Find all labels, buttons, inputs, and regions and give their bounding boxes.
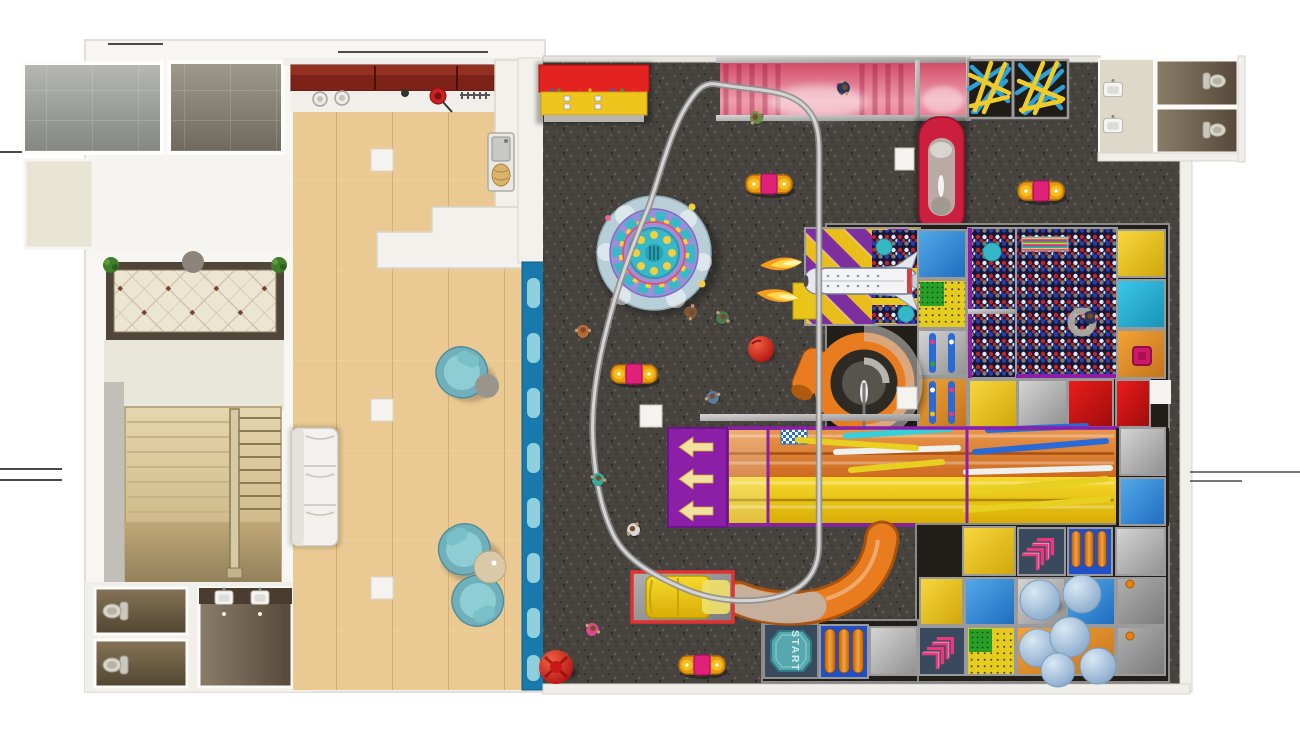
climb-panel-orange xyxy=(918,378,967,427)
storage-room xyxy=(25,160,93,248)
gray-mat xyxy=(1116,528,1165,575)
perforated-mat xyxy=(967,627,1015,675)
wave-slides xyxy=(700,414,1118,525)
wall-strip xyxy=(104,382,124,582)
rocker-toy xyxy=(679,655,728,679)
toilet-stall xyxy=(95,640,187,687)
reception-desk xyxy=(536,62,652,124)
plant-icon xyxy=(103,257,119,273)
floorplan-stage: START xyxy=(0,0,1300,742)
plant-icon xyxy=(271,257,287,273)
start-pad: START xyxy=(764,624,818,678)
pillar xyxy=(897,387,917,409)
rocker-toy xyxy=(746,174,795,198)
toilet-stall xyxy=(1156,108,1238,153)
chevron-panel xyxy=(919,627,965,675)
roller-crawl xyxy=(1068,528,1112,575)
pillar xyxy=(371,399,393,421)
gray-mat xyxy=(1018,380,1067,427)
stair-rail xyxy=(230,409,239,572)
pillar xyxy=(640,405,662,427)
water-station xyxy=(488,133,514,191)
rocker-toy xyxy=(611,364,660,388)
entry-lobby-carpet xyxy=(103,251,287,410)
restrooms-left xyxy=(85,582,310,692)
yellow-mat xyxy=(969,380,1017,427)
rocker-toy xyxy=(1018,181,1067,205)
sink-room xyxy=(1100,60,1153,156)
climb-panel-gray xyxy=(918,330,967,376)
ball-pit-large xyxy=(1016,228,1117,378)
pillar xyxy=(371,577,393,599)
yellow-mat xyxy=(920,578,963,625)
red-mat xyxy=(1068,380,1113,427)
yellow-mat xyxy=(963,527,1015,575)
gray-mat-handles xyxy=(1117,578,1165,675)
wrecking-balls xyxy=(1017,575,1116,687)
utility-room-a xyxy=(23,63,162,153)
sofa xyxy=(289,426,341,548)
shoe-wall-divider xyxy=(522,262,545,690)
rope-crisscross-zone xyxy=(968,60,1068,118)
gray-mat xyxy=(1120,428,1165,475)
toilet-stall xyxy=(1156,60,1238,106)
blue-mat xyxy=(918,230,966,278)
wall-notch xyxy=(1150,380,1171,404)
frame-bar xyxy=(700,414,920,421)
hall-floor xyxy=(93,155,290,252)
blue-mat xyxy=(1120,478,1165,525)
rainbow-mat xyxy=(1022,237,1068,251)
blue-mat xyxy=(965,578,1015,625)
yellow-mat xyxy=(1117,230,1165,277)
pillar xyxy=(371,149,393,171)
chevron-panel xyxy=(1018,528,1065,575)
bottom-wall xyxy=(543,684,1190,694)
side-table xyxy=(475,374,499,398)
ball-pit-small xyxy=(968,228,1016,378)
slide-landing-arrows xyxy=(668,428,727,527)
perforated-mat xyxy=(918,280,966,328)
pillar xyxy=(895,148,914,170)
cyan-mat xyxy=(1117,280,1165,328)
gray-mat xyxy=(870,627,917,675)
round-table xyxy=(182,251,204,273)
roller-crawl xyxy=(820,625,868,678)
coffee-table xyxy=(474,551,506,583)
cafe-lounge xyxy=(283,58,545,690)
stair-landing xyxy=(125,522,281,582)
staircase xyxy=(125,407,281,582)
right-wall xyxy=(1180,158,1192,692)
start-sign-label: START xyxy=(789,630,801,672)
orange-mat-hatch xyxy=(1117,330,1165,378)
red-mat xyxy=(1116,380,1150,427)
restrooms-right xyxy=(1098,56,1245,162)
red-tube-slide xyxy=(915,117,968,236)
toilet-stall xyxy=(95,588,187,634)
utility-room-b xyxy=(169,62,283,153)
washroom xyxy=(199,588,292,687)
